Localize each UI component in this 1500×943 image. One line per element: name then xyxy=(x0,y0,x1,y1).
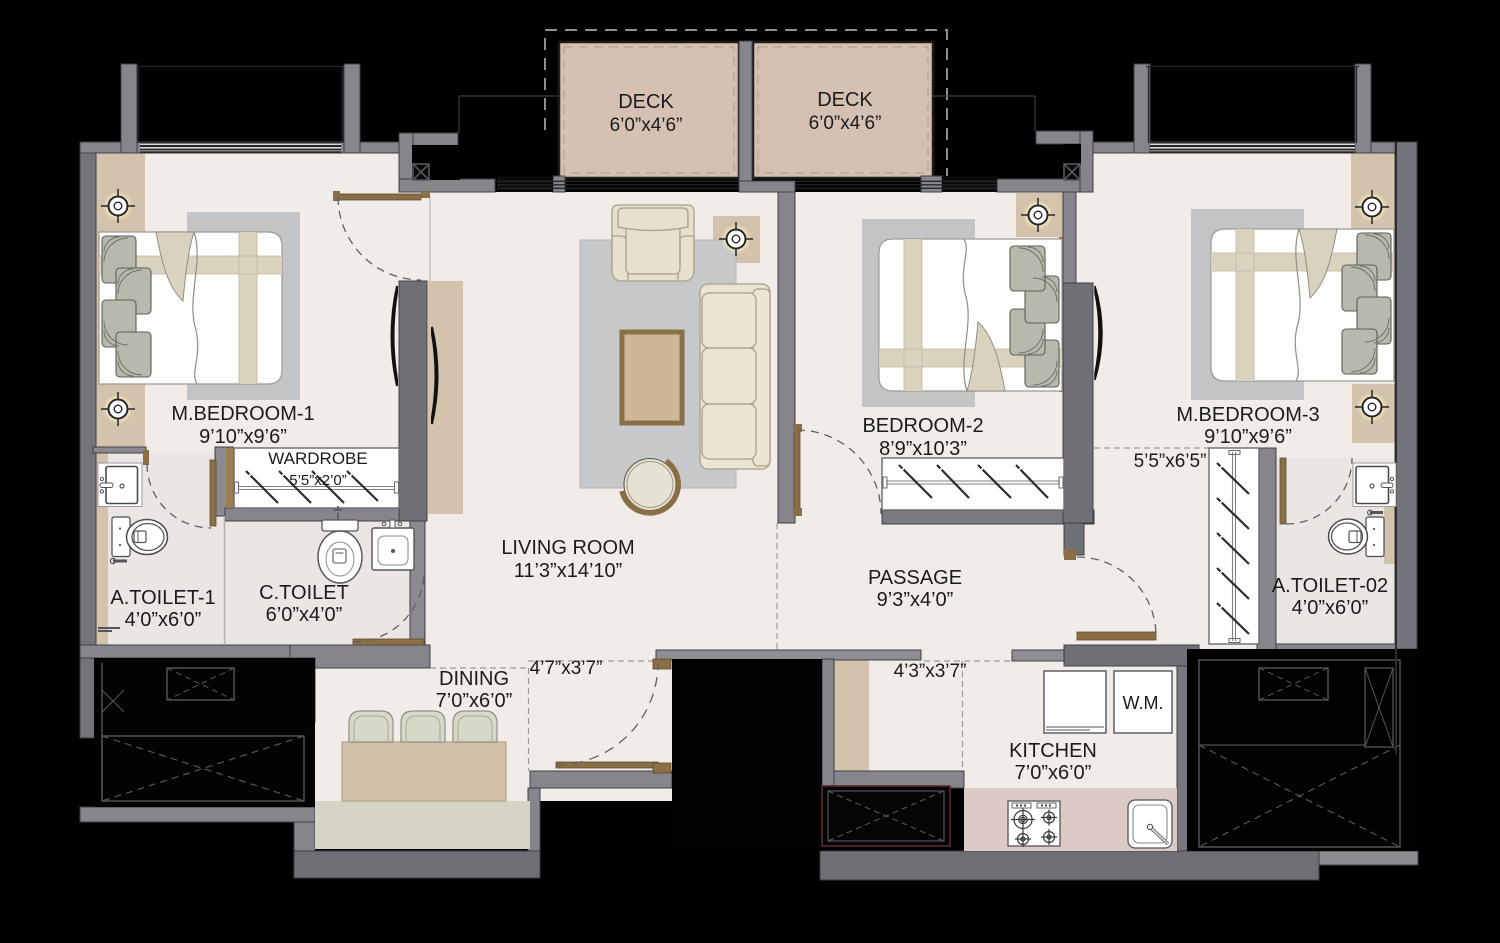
svg-text:PASSAGE: PASSAGE xyxy=(868,567,962,589)
svg-text:A.TOILET-1: A.TOILET-1 xyxy=(110,587,215,609)
svg-text:C.TOILET: C.TOILET xyxy=(259,582,349,604)
svg-text:9’10”x9’6”: 9’10”x9’6” xyxy=(1204,426,1292,448)
svg-text:8’9”x10’3”: 8’9”x10’3” xyxy=(879,438,967,460)
svg-text:4’7”x3’7”: 4’7”x3’7” xyxy=(530,658,603,679)
svg-text:4’3”x3’7”: 4’3”x3’7” xyxy=(894,661,967,682)
svg-text:7’0”x6’0”: 7’0”x6’0” xyxy=(1015,762,1092,784)
svg-text:4’0”x6’0”: 4’0”x6’0” xyxy=(1292,597,1369,619)
svg-text:DINING: DINING xyxy=(439,668,509,690)
svg-text:6’0”x4’6”: 6’0”x4’6” xyxy=(809,113,882,134)
svg-text:WARDROBE: WARDROBE xyxy=(268,449,368,468)
svg-text:7’0”x6’0”: 7’0”x6’0” xyxy=(436,690,513,712)
svg-text:BEDROOM-2: BEDROOM-2 xyxy=(862,415,983,437)
svg-text:11’3”x14’10”: 11’3”x14’10” xyxy=(514,560,623,582)
svg-text:KITCHEN: KITCHEN xyxy=(1009,740,1097,762)
svg-text:6’0”x4’6”: 6’0”x4’6” xyxy=(610,115,683,136)
svg-text:M.BEDROOM-3: M.BEDROOM-3 xyxy=(1176,404,1319,426)
svg-text:LIVING ROOM: LIVING ROOM xyxy=(501,537,634,559)
svg-text:5’5”x6’5”: 5’5”x6’5” xyxy=(1134,451,1207,472)
svg-text:A.TOILET-02: A.TOILET-02 xyxy=(1272,575,1388,597)
svg-text:6’0”x4’0”: 6’0”x4’0” xyxy=(266,604,343,626)
svg-text:M.BEDROOM-1: M.BEDROOM-1 xyxy=(171,403,314,425)
svg-text:DECK: DECK xyxy=(618,91,674,113)
svg-text:9’3”x4’0”: 9’3”x4’0” xyxy=(877,589,954,611)
svg-text:W.M.: W.M. xyxy=(1123,693,1164,713)
svg-text:DECK: DECK xyxy=(817,89,873,111)
svg-text:4’0”x6’0”: 4’0”x6’0” xyxy=(125,609,202,631)
svg-text:5’5”x2’0”: 5’5”x2’0” xyxy=(289,472,347,489)
svg-text:9’10”x9’6”: 9’10”x9’6” xyxy=(199,426,287,448)
